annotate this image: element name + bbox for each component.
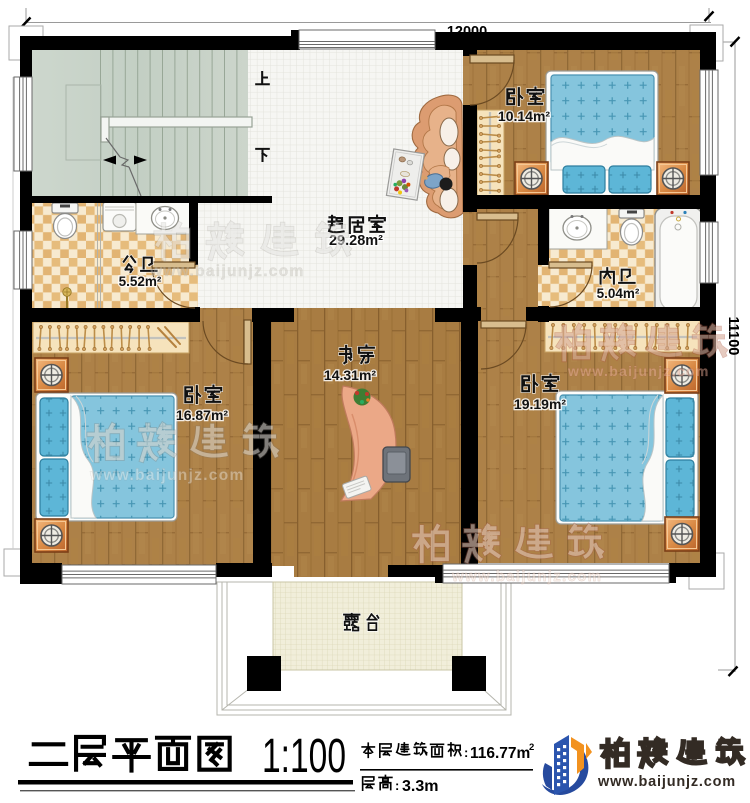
svg-text:116.77m: 116.77m <box>470 745 530 762</box>
svg-text:2: 2 <box>529 742 534 753</box>
svg-text:www.baijunjz.com: www.baijunjz.com <box>89 467 245 484</box>
svg-text:19.19m²: 19.19m² <box>514 396 566 412</box>
svg-text:5.04m²: 5.04m² <box>597 286 640 301</box>
svg-text:www.baijunjz.com: www.baijunjz.com <box>451 568 602 585</box>
svg-text:10.14m²: 10.14m² <box>498 108 550 124</box>
svg-text:www.baijunjz.com: www.baijunjz.com <box>597 774 736 790</box>
svg-text::: : <box>464 745 468 760</box>
svg-text:3.3m: 3.3m <box>402 778 438 795</box>
svg-text:1:100: 1:100 <box>262 730 346 783</box>
svg-text::: : <box>395 778 399 793</box>
svg-text:14.31m²: 14.31m² <box>324 367 376 383</box>
svg-text:11100: 11100 <box>725 317 741 356</box>
svg-text:www.baijunjz.com: www.baijunjz.com <box>149 263 305 280</box>
svg-text:www.baijunjz.com: www.baijunjz.com <box>567 363 710 379</box>
svg-text:16.87m²: 16.87m² <box>176 407 228 423</box>
